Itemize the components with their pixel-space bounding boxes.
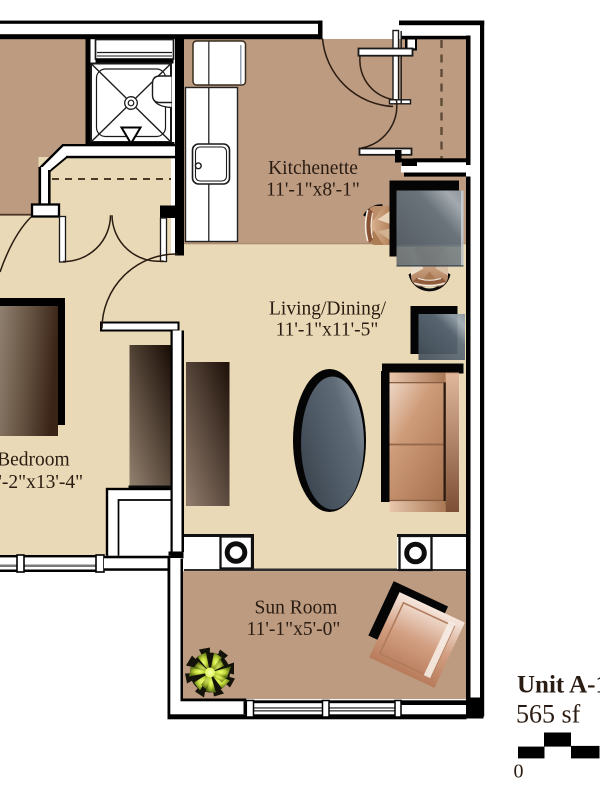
svg-text:11'-1"x5'-0": 11'-1"x5'-0": [247, 619, 341, 640]
svg-text:Bedroom: Bedroom: [0, 450, 70, 471]
svg-text:Unit A-1: Unit A-1: [517, 672, 600, 699]
svg-text:565 sf: 565 sf: [516, 700, 581, 729]
svg-text:Kitchenette: Kitchenette: [268, 158, 358, 179]
svg-text:10'-2"x13'-4": 10'-2"x13'-4": [0, 472, 83, 493]
svg-text:Living/Dining/: Living/Dining/: [269, 299, 387, 320]
svg-text:Sun Room: Sun Room: [255, 598, 338, 619]
svg-text:11'-1"x8'-1": 11'-1"x8'-1": [266, 180, 360, 201]
svg-text:0: 0: [514, 761, 524, 783]
svg-text:11'-1"x11'-5": 11'-1"x11'-5": [276, 320, 379, 341]
